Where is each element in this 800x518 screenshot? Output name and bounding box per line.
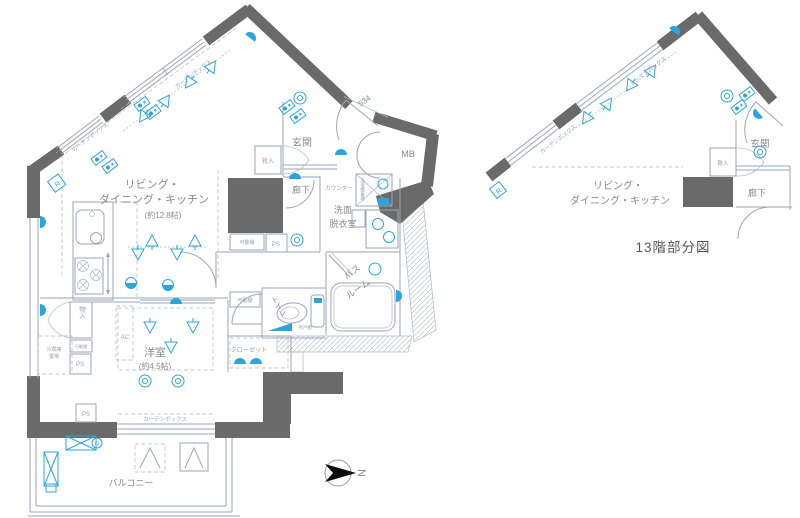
bath-label-2: ルーム (344, 277, 372, 301)
dim-534-label: 534 (357, 93, 374, 108)
shoe-box-label: 靴入 (262, 157, 274, 165)
movable-shelf-label-3: 可動棚 (75, 343, 88, 350)
ac-label: AC (121, 335, 130, 341)
partial-ldk-label-2: ダイニング・キッチン (570, 194, 670, 207)
g-mark: G (95, 442, 99, 448)
closet-label: クローゼット (230, 346, 267, 354)
partial-entrance-label: 玄関 (750, 138, 769, 150)
storage-label: 物入 (78, 305, 86, 320)
washroom-label-1: 洗面 (334, 204, 352, 215)
partial-shoe-box: 靴入 (710, 148, 764, 176)
left-wall (30, 218, 38, 378)
ldk-door-arc (180, 252, 216, 288)
counter-label: カウンター (325, 184, 353, 192)
ps-label-2: PS (76, 362, 84, 368)
dimension-534: 534 (344, 93, 389, 118)
curtain-box-label-3: カーテンボックス (143, 415, 187, 423)
r-mark-partial: R (490, 182, 507, 199)
washroom-label-2: 脱衣室 (329, 218, 356, 229)
mb-doors (357, 132, 380, 178)
toilet-label: トイレ (269, 294, 288, 318)
floor-plan-page: 靴入 534 洗濯機置場 (0, 0, 800, 518)
shoe-box-main: 靴入 (255, 146, 309, 174)
hallway-label: 廊下 (292, 184, 310, 195)
ldk-label-2: ダイニング・キッチン (99, 192, 209, 206)
partial-windows (505, 43, 663, 165)
fridge-label-2: 置場 (49, 353, 59, 360)
partial-caption: 13階部分図 (635, 240, 710, 255)
movable-shelf-label-1: 可動棚 (239, 239, 254, 246)
hatch-bands (277, 190, 436, 372)
movable-shelf-label-2: 可動棚 (237, 297, 252, 304)
fridge-label-1: 冷蔵庫 (46, 346, 61, 353)
partial-curtain-boxes: カーテンボックス カーテンボックス (510, 54, 668, 166)
washing-machine: 洗濯機置場 (356, 174, 392, 206)
storage-column: 物入 可動棚 PS 冷蔵庫 置場 PS (38, 302, 96, 422)
north-arrow-icon (325, 464, 356, 482)
partial-shoe-box-label: 靴入 (717, 159, 729, 167)
curtain-box-label-2: カーテンボックス (70, 121, 110, 154)
partial-walls (489, 15, 773, 207)
bathtub (329, 253, 402, 331)
hanging-shelf-label: 吊戸棚 (298, 324, 312, 331)
shelf-ps-row: 可動棚 PS 可動棚 (230, 234, 287, 307)
western-room: AC (116, 298, 216, 414)
western-room-size: (約4.5帖) (139, 361, 172, 371)
north-label: N (355, 469, 367, 477)
r-mark-main: R (48, 174, 66, 192)
meter-box-label: MB (401, 149, 415, 159)
entrance-label: 玄関 (292, 136, 312, 149)
partial-hallway-label: 廊下 (748, 187, 766, 198)
partial-ldk-label-1: リビング・ (593, 179, 643, 192)
ldk-label-1: リビング・ (125, 177, 180, 191)
ps-label-3: PS (82, 412, 90, 418)
balcony-window (117, 424, 215, 434)
partial-interior (532, 102, 792, 239)
compass: N (325, 460, 367, 486)
bath-label-1: バス (342, 263, 362, 282)
balcony-label: バルコニー (109, 478, 154, 488)
ps-label-1: PS (272, 242, 280, 248)
curtain-box-label-1: カーテンボックス (173, 58, 213, 91)
balcony: G (28, 436, 240, 516)
floor-plan-canvas: 靴入 534 洗濯機置場 (0, 0, 800, 518)
laundry-label: 洗濯機置場 (360, 177, 366, 202)
western-room-label: 洋室 (144, 345, 166, 359)
ldk-size-label: (約12.8帖) (145, 210, 182, 220)
partial-labels: リビング・ ダイニング・キッチン 玄関 廊下 13階部分図 (570, 138, 770, 255)
